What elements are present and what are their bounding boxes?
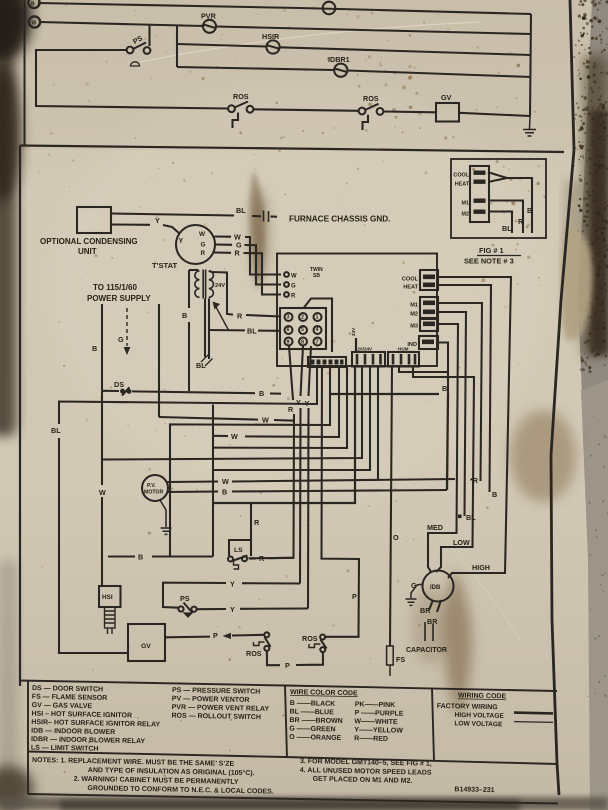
svg-text:IDB: IDB: [430, 585, 441, 591]
svg-text:P: P: [285, 661, 290, 670]
svg-text:G: G: [291, 284, 296, 290]
svg-text:DS: DS: [114, 380, 124, 389]
svg-text:3: 3: [287, 315, 290, 321]
svg-text:2: 2: [301, 315, 304, 321]
svg-text:M1: M1: [410, 303, 418, 309]
svg-text:R——RED: R——RED: [354, 735, 388, 743]
svg-text:FACTORY WIRING: FACTORY WIRING: [437, 703, 499, 711]
svg-text:Y: Y: [179, 238, 184, 245]
svg-text:120/24V: 120/24V: [355, 347, 373, 352]
svg-text:PK——PINK: PK——PINK: [355, 701, 396, 709]
svg-text:BL ——BLUE: BL ——BLUE: [290, 708, 335, 716]
svg-text:OPTIONAL CONDENSING: OPTIONAL CONDENSING: [40, 237, 138, 246]
svg-text:FS — FLAME SENSOR: FS — FLAME SENSOR: [32, 694, 108, 702]
svg-text:W: W: [231, 432, 238, 441]
svg-text:BR ——BROWN: BR ——BROWN: [289, 717, 342, 725]
svg-text:FS: FS: [396, 655, 405, 664]
svg-text:HEAT: HEAT: [403, 285, 418, 291]
svg-text:B: B: [182, 311, 187, 320]
svg-text:W: W: [199, 231, 206, 238]
svg-text:R: R: [201, 250, 206, 257]
svg-text:G: G: [118, 335, 124, 344]
svg-text:M2: M2: [410, 312, 418, 318]
svg-text:PVR: PVR: [201, 12, 217, 21]
svg-text:Y: Y: [155, 216, 160, 225]
svg-text:W——WHITE: W——WHITE: [354, 718, 398, 726]
svg-text:W: W: [222, 477, 229, 486]
svg-text:4: 4: [316, 327, 319, 333]
svg-text:Y: Y: [230, 580, 235, 589]
svg-text:W: W: [262, 416, 269, 425]
svg-text:ROS: ROS: [302, 634, 318, 643]
svg-text:B ——BLACK: B ——BLACK: [290, 700, 336, 708]
svg-text:M3: M3: [410, 324, 418, 330]
svg-text:BL: BL: [502, 224, 512, 233]
svg-text:B: B: [527, 206, 532, 215]
svg-text:TO 115/1/60: TO 115/1/60: [93, 283, 137, 292]
svg-text:WIRING CODE: WIRING CODE: [458, 692, 507, 700]
svg-text:COOL: COOL: [402, 277, 419, 283]
svg-text:*R: *R: [470, 476, 479, 485]
svg-text:BL: BL: [247, 327, 257, 336]
svg-text:R: R: [235, 249, 241, 258]
svg-text:P: P: [352, 592, 357, 601]
svg-text:BL: BL: [236, 206, 246, 215]
svg-text:M1: M1: [462, 201, 470, 207]
svg-text:B: B: [222, 488, 227, 497]
svg-text:GV — GAS VALVE: GV — GAS VALVE: [32, 702, 93, 710]
svg-text:P.V.: P.V.: [147, 483, 156, 489]
svg-text:Y: Y: [230, 605, 235, 614]
svg-text:BL: BL: [51, 426, 61, 435]
svg-text:BL: BL: [466, 513, 476, 522]
svg-text:FURNACE CHASSIS GND.: FURNACE CHASSIS GND.: [289, 215, 390, 224]
svg-text:ROS: ROS: [246, 649, 262, 658]
svg-text:Y: Y: [305, 399, 310, 408]
svg-text:PV — POWER VENTOR: PV — POWER VENTOR: [172, 695, 250, 703]
svg-text:R: R: [518, 217, 524, 226]
svg-text:P: P: [213, 631, 218, 640]
svg-text:B: B: [31, 2, 35, 8]
svg-text:W: W: [99, 488, 106, 497]
svg-text:PS: PS: [180, 594, 190, 603]
svg-text:R: R: [237, 312, 243, 321]
svg-text:MED: MED: [427, 523, 443, 532]
svg-text:BR: BR: [427, 617, 438, 626]
svg-text:Y——YELLOW: Y——YELLOW: [354, 727, 403, 735]
svg-text:UNIT: UNIT: [78, 247, 97, 256]
svg-text:R: R: [288, 405, 294, 414]
svg-text:LS — LIMIT SWITCH: LS — LIMIT SWITCH: [31, 745, 99, 753]
svg-text:P ——PURPLE: P ——PURPLE: [355, 710, 404, 718]
svg-text:O ——ORANGE: O ——ORANGE: [289, 734, 342, 742]
svg-text:GV: GV: [441, 93, 452, 102]
svg-text:B14933–231: B14933–231: [454, 786, 494, 794]
svg-text:IDBR1: IDBR1: [328, 55, 350, 64]
svg-text:IND: IND: [407, 342, 417, 348]
svg-text:BL: BL: [196, 361, 206, 370]
svg-text:WIRE COLOR CODE: WIRE COLOR CODE: [290, 689, 358, 697]
svg-text:G: G: [411, 581, 417, 590]
svg-text:O: O: [393, 533, 399, 542]
svg-text:G ——GREEN: G ——GREEN: [289, 725, 335, 733]
svg-text:ROS: ROS: [363, 94, 379, 103]
svg-text:LOW VOLTAGE: LOW VOLTAGE: [454, 720, 503, 728]
svg-text:5: 5: [301, 327, 304, 333]
svg-text:24V: 24V: [351, 327, 356, 336]
svg-text:POWER SUPPLY: POWER SUPPLY: [87, 294, 151, 303]
svg-text:Y: Y: [296, 398, 301, 407]
svg-text:B: B: [259, 389, 264, 398]
svg-text:BR: BR: [420, 606, 431, 615]
svg-text:B: B: [92, 344, 97, 353]
svg-text:1: 1: [316, 315, 319, 321]
svg-text:B: B: [442, 384, 447, 393]
svg-text:R: R: [291, 294, 296, 300]
svg-text:HIGH VOLTAGE: HIGH VOLTAGE: [454, 712, 504, 720]
svg-text:HEAT: HEAT: [455, 182, 470, 188]
svg-text:8: 8: [301, 340, 304, 346]
svg-text:GV: GV: [141, 643, 151, 650]
svg-text:DS — DOOR SWITCH: DS — DOOR SWITCH: [32, 685, 103, 693]
svg-text:CAPACITOR: CAPACITOR: [406, 647, 447, 654]
svg-text:24V: 24V: [215, 283, 225, 289]
svg-text:SEE NOTE # 3: SEE NOTE # 3: [464, 257, 514, 266]
svg-text:W: W: [291, 274, 297, 280]
svg-text:MOTOR: MOTOR: [144, 490, 163, 496]
svg-text:HIGH: HIGH: [472, 563, 490, 572]
svg-text:G: G: [201, 242, 206, 249]
svg-text:R: R: [259, 554, 265, 563]
svg-text:LOW: LOW: [453, 538, 470, 547]
svg-text:W: W: [32, 21, 37, 27]
svg-text:M2: M2: [462, 212, 470, 218]
svg-text:FIG # 1: FIG # 1: [479, 246, 504, 255]
svg-text:9: 9: [287, 340, 290, 346]
svg-text:7: 7: [316, 340, 319, 346]
svg-text:R: R: [254, 518, 260, 527]
svg-text:LS: LS: [234, 547, 243, 554]
svg-text:HSI: HSI: [102, 594, 113, 601]
svg-text:HSIR: HSIR: [262, 32, 280, 41]
svg-text:COOL: COOL: [453, 173, 469, 179]
svg-text:ROS: ROS: [233, 92, 249, 101]
svg-text:SB: SB: [313, 273, 320, 279]
svg-text:T'STAT: T'STAT: [152, 261, 178, 270]
svg-text:B: B: [492, 490, 497, 499]
svg-text:B: B: [138, 553, 143, 562]
svg-text:6: 6: [287, 327, 290, 333]
